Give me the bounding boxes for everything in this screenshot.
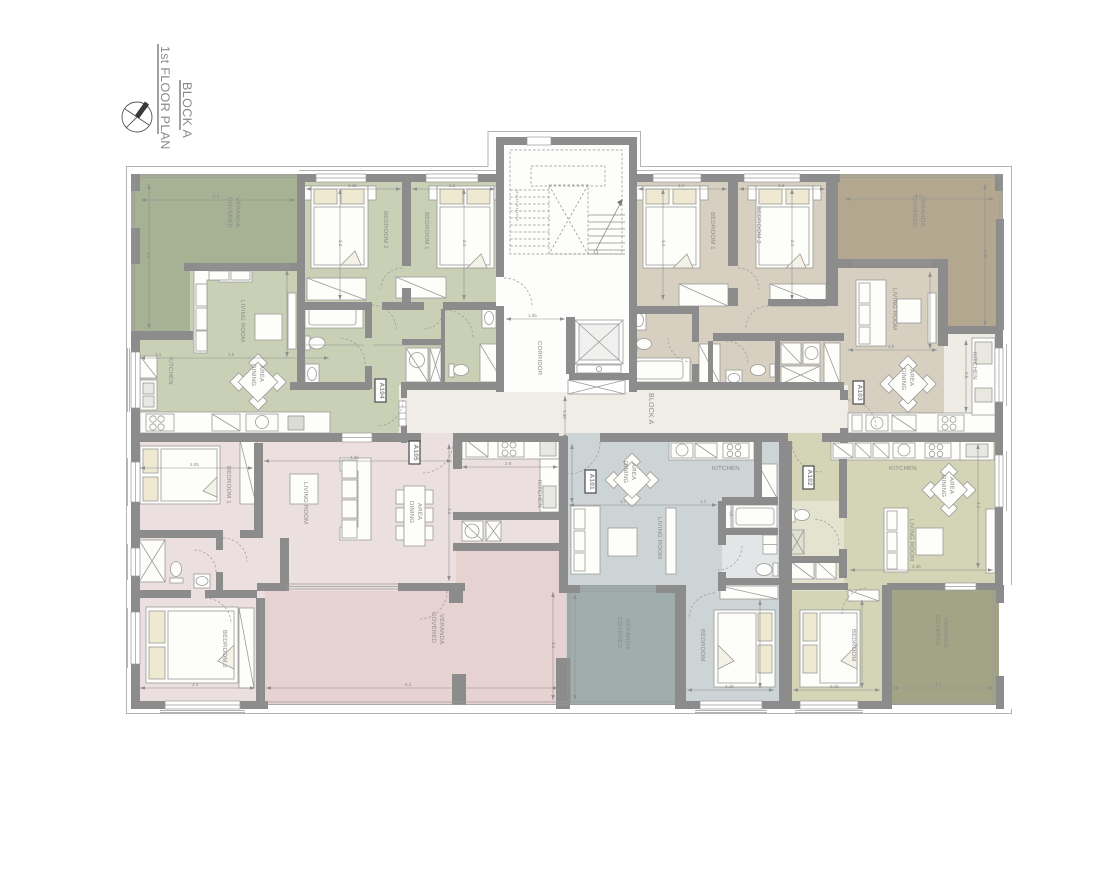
- svg-text:KITCHEN: KITCHEN: [712, 465, 740, 472]
- svg-text:3.3: 3.3: [192, 682, 199, 687]
- svg-text:BLOCK A: BLOCK A: [647, 393, 654, 424]
- svg-text:KITCHEN: KITCHEN: [889, 465, 917, 472]
- svg-text:AREA: AREA: [908, 369, 915, 386]
- svg-text:DINING: DINING: [940, 475, 947, 497]
- svg-text:BEDROOM 1: BEDROOM 1: [423, 212, 430, 250]
- svg-text:4.2: 4.2: [447, 508, 452, 515]
- svg-text:AREA: AREA: [416, 503, 423, 520]
- svg-text:VERANDA: VERANDA: [919, 196, 926, 226]
- svg-text:CORRIDOR: CORRIDOR: [536, 341, 543, 376]
- svg-text:3.15: 3.15: [830, 684, 839, 689]
- svg-text:3.3: 3.3: [778, 183, 785, 188]
- svg-text:LIVING ROOM: LIVING ROOM: [302, 482, 309, 524]
- svg-text:3.4: 3.4: [678, 183, 685, 188]
- svg-text:4.35: 4.35: [983, 250, 988, 259]
- svg-text:LIVING ROOM: LIVING ROOM: [239, 300, 246, 342]
- svg-text:BEDROOM: BEDROOM: [850, 629, 857, 661]
- svg-text:VERANDA: VERANDA: [438, 614, 445, 644]
- svg-text:A103: A103: [856, 385, 863, 402]
- svg-text:3.2: 3.2: [338, 240, 343, 247]
- svg-text:BEDROOM 2: BEDROOM 2: [221, 630, 228, 668]
- svg-text:2.9: 2.9: [505, 461, 512, 466]
- svg-text:1.4: 1.4: [935, 682, 942, 687]
- svg-text:3.1: 3.1: [551, 642, 556, 649]
- svg-text:3.4: 3.4: [661, 240, 666, 247]
- svg-text:DINING: DINING: [408, 501, 415, 523]
- svg-text:DINING: DINING: [622, 461, 629, 483]
- svg-text:BEDROOM 1: BEDROOM 1: [709, 212, 716, 250]
- svg-text:3.15: 3.15: [725, 684, 734, 689]
- svg-text:KITCHEN: KITCHEN: [971, 352, 978, 380]
- svg-text:BEDROOM 2: BEDROOM 2: [382, 211, 389, 249]
- svg-text:COVERED: COVERED: [226, 197, 233, 229]
- svg-text:3.15: 3.15: [348, 183, 357, 188]
- svg-text:VERANDA: VERANDA: [234, 197, 241, 227]
- svg-text:3.5: 3.5: [888, 344, 895, 349]
- svg-text:LIVING ROOM: LIVING ROOM: [908, 519, 915, 561]
- svg-text:BEDROOM 2: BEDROOM 2: [755, 206, 762, 244]
- svg-text:1.1: 1.1: [700, 499, 707, 504]
- svg-text:BEDROOM 1: BEDROOM 1: [225, 466, 232, 504]
- svg-text:COVERED: COVERED: [616, 617, 623, 649]
- svg-text:VERANDA: VERANDA: [624, 619, 631, 649]
- svg-text:1st FLOOR PLAN: 1st FLOOR PLAN: [158, 46, 172, 150]
- svg-text:VERANDA: VERANDA: [942, 617, 949, 647]
- svg-text:A102: A102: [806, 470, 813, 487]
- svg-text:4.2: 4.2: [915, 193, 922, 198]
- svg-text:1.55: 1.55: [528, 313, 537, 318]
- svg-text:A104: A104: [378, 383, 385, 400]
- svg-text:BLOCK A: BLOCK A: [180, 82, 194, 139]
- svg-text:15 14 13 12 11 10 9 8: 15 14 13 12 11 10 9 8: [515, 190, 519, 221]
- svg-text:KITCHEN: KITCHEN: [167, 357, 174, 385]
- svg-text:6.2: 6.2: [405, 682, 412, 687]
- svg-text:AREA: AREA: [630, 463, 637, 480]
- svg-text:COVERED: COVERED: [934, 615, 941, 647]
- svg-text:AREA: AREA: [258, 365, 265, 382]
- svg-text:3.2: 3.2: [449, 183, 456, 188]
- svg-text:4.45: 4.45: [912, 564, 921, 569]
- svg-text:COVERED: COVERED: [911, 196, 918, 228]
- svg-text:2.5: 2.5: [964, 372, 969, 379]
- svg-text:4.1: 4.1: [976, 502, 981, 509]
- svg-text:KITCHEN: KITCHEN: [536, 480, 543, 508]
- svg-text:5.2: 5.2: [213, 194, 220, 199]
- svg-text:4.35: 4.35: [350, 455, 359, 460]
- svg-text:3.7: 3.7: [620, 499, 627, 504]
- svg-text:3.4: 3.4: [790, 240, 795, 247]
- svg-text:DINING: DINING: [900, 368, 907, 390]
- svg-text:1.6: 1.6: [228, 352, 235, 357]
- svg-text:LIVING ROOM: LIVING ROOM: [656, 517, 663, 559]
- svg-text:LIVING ROOM: LIVING ROOM: [891, 288, 898, 330]
- svg-text:3.05: 3.05: [190, 462, 199, 467]
- svg-text:BEDROOM: BEDROOM: [699, 629, 706, 661]
- svg-text:A101: A101: [588, 474, 595, 491]
- svg-text:1.1: 1.1: [155, 352, 162, 357]
- svg-text:COVERED: COVERED: [430, 612, 437, 644]
- svg-text:A105: A105: [412, 445, 419, 462]
- svg-text:3.4: 3.4: [462, 240, 467, 247]
- svg-text:AREA: AREA: [948, 477, 955, 494]
- svg-text:4.2: 4.2: [146, 252, 151, 259]
- svg-text:1.35: 1.35: [562, 410, 567, 419]
- svg-text:DINING: DINING: [250, 364, 257, 386]
